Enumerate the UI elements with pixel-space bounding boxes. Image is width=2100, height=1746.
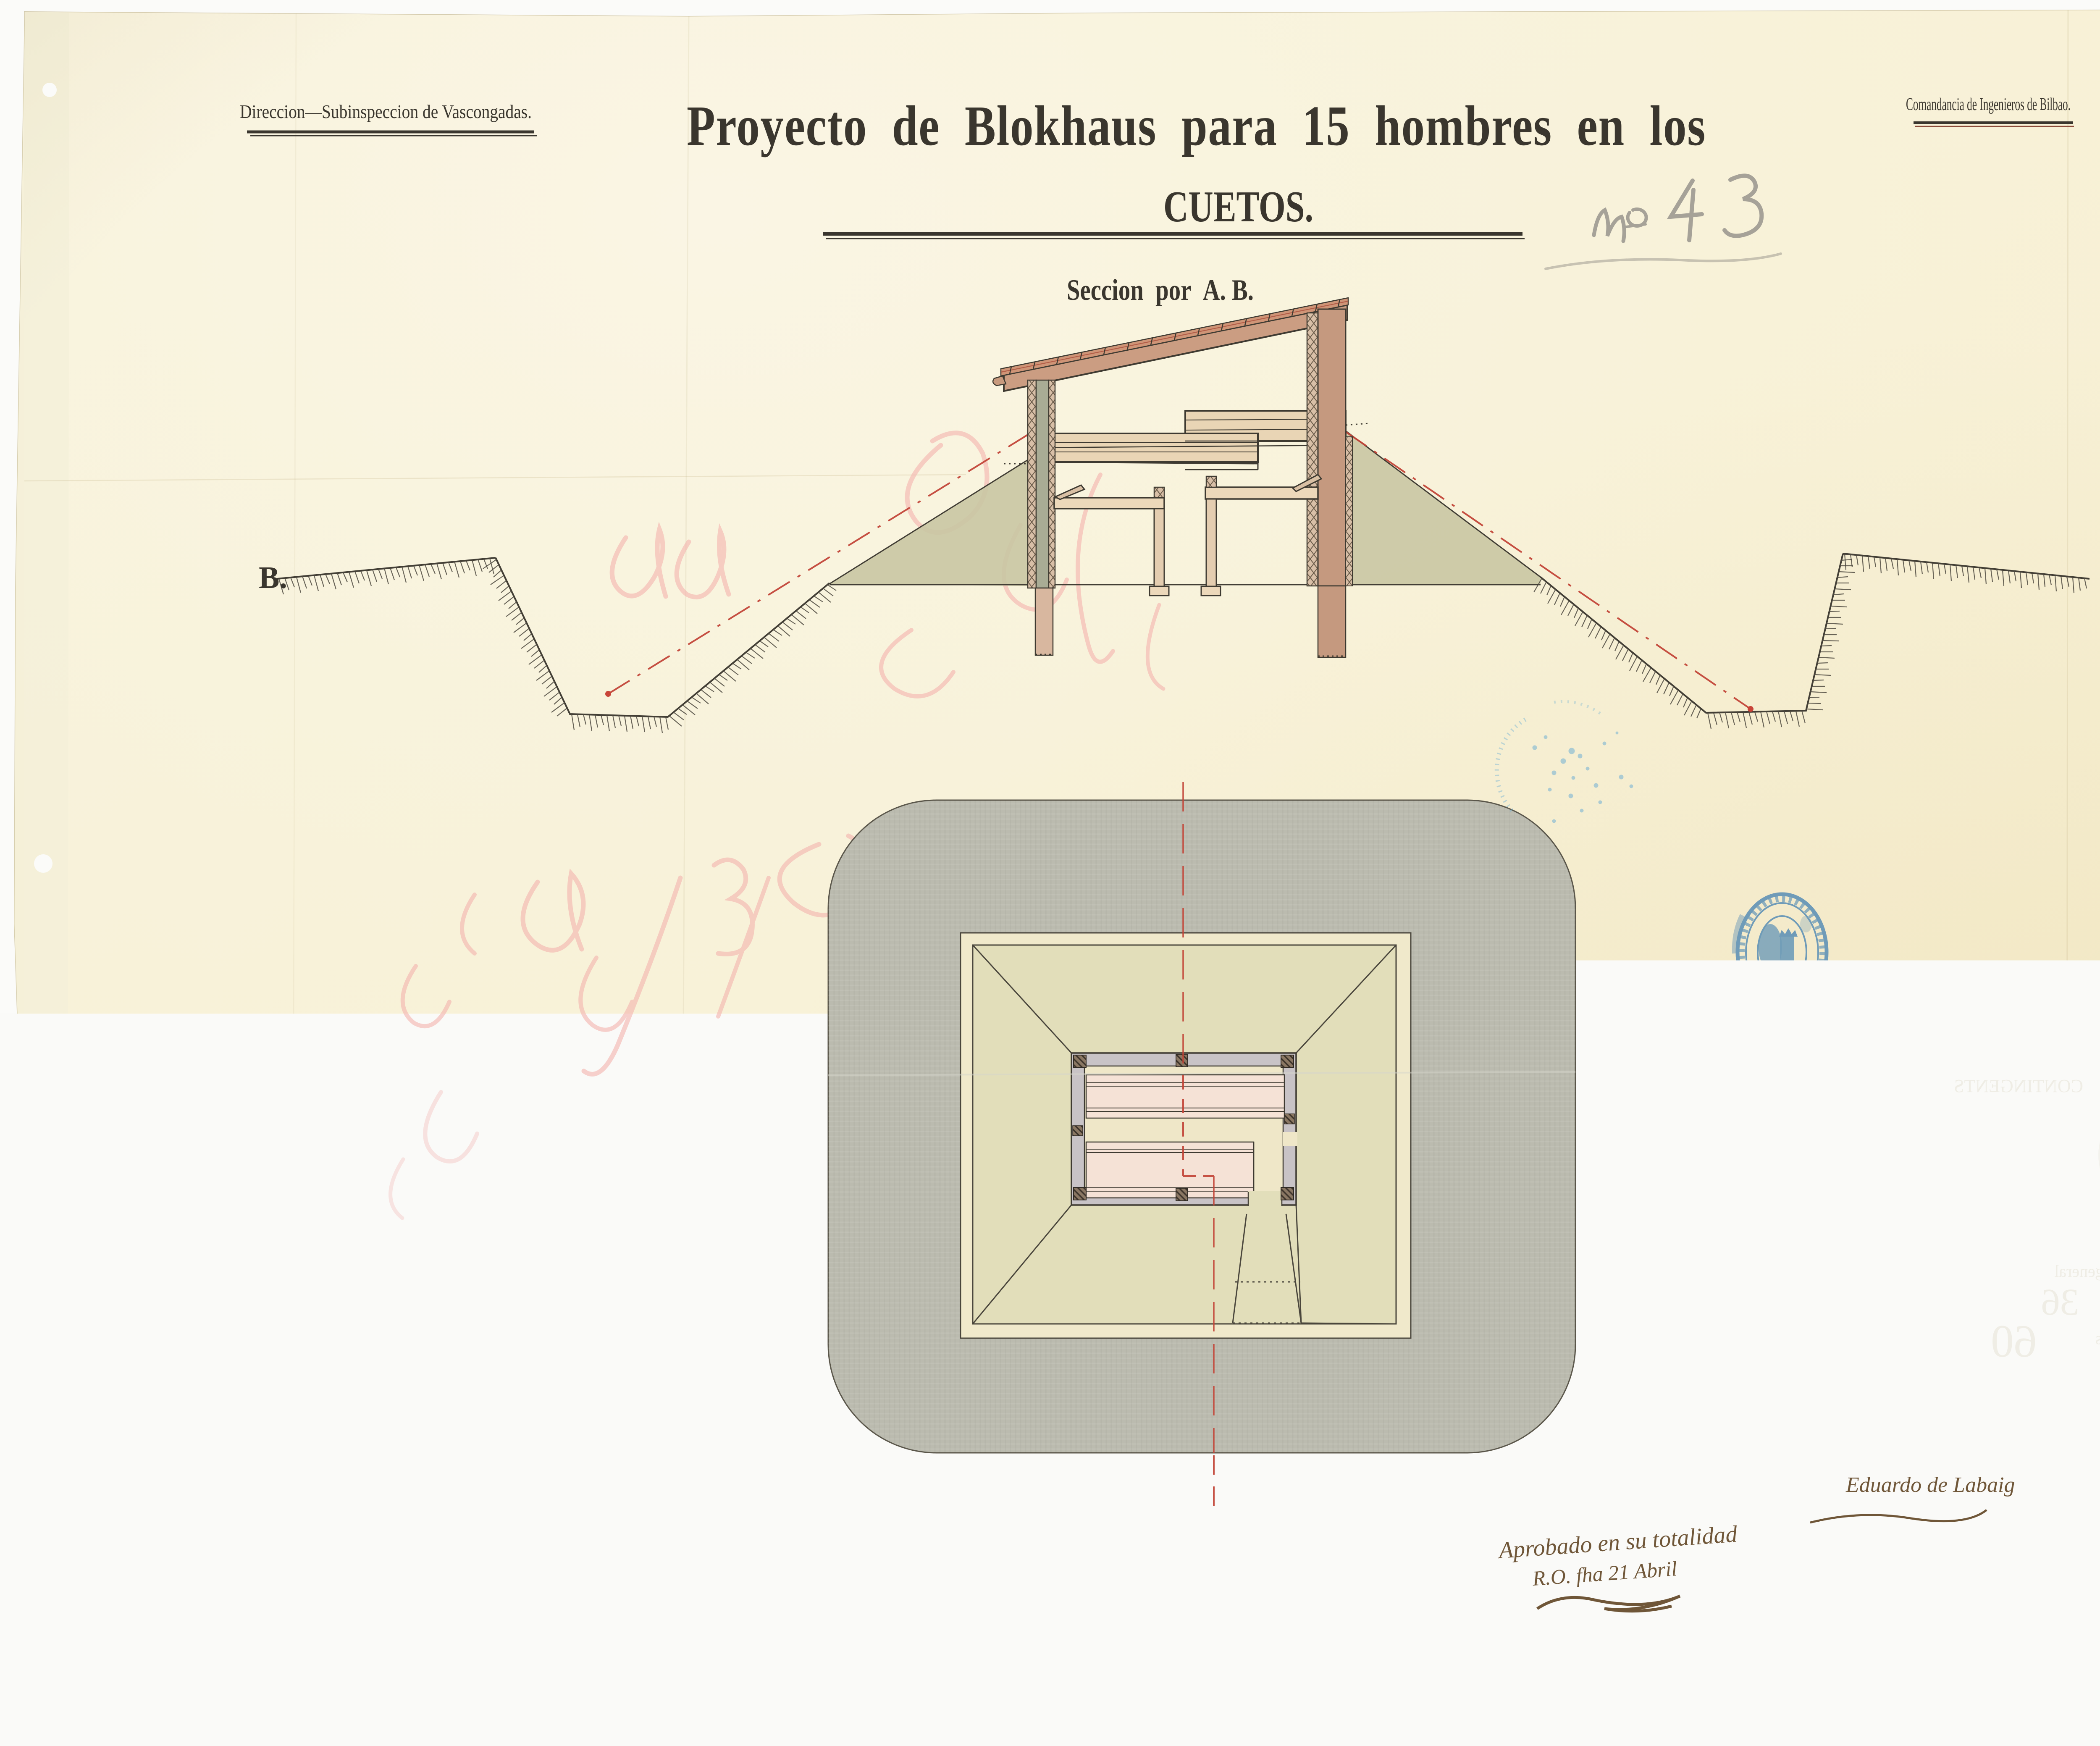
svg-text:5: 5	[1769, 1273, 1774, 1286]
svg-text:Direccion—Subinspeccion de Vas: Direccion—Subinspeccion de Vascongadas.	[240, 101, 532, 122]
svg-text:CONTINGENTS: CONTINGENTS	[1954, 1076, 2083, 1096]
svg-text:B.: B.	[259, 561, 287, 595]
svg-text:El Comandante de Ingenieros de: El Comandante de Ingenieros de la plaza.	[1831, 1447, 2091, 1467]
svg-text:60: 60	[1991, 1315, 2037, 1367]
svg-text:0: 0	[1787, 1273, 1793, 1286]
svg-text:3: 3	[1894, 1273, 1900, 1286]
svg-text:2: 2	[1858, 1273, 1864, 1286]
svg-text:4: 4	[2079, 1236, 2084, 1248]
svg-text:1: 1	[1822, 1273, 1828, 1286]
svg-text:Para la Seccion 1 por 50.: Para la Seccion 1 por 50.	[1871, 1219, 2053, 1238]
svg-text:A.: A.	[1169, 758, 1197, 790]
svg-text:1: 1	[1751, 1273, 1757, 1286]
svg-text:4: 4	[1929, 1273, 1935, 1286]
svg-text:36: 36	[2041, 1281, 2079, 1323]
svg-text:Numero general: Numero general	[2054, 1262, 2100, 1281]
svg-text:25: 25	[1798, 1238, 1809, 1251]
svg-text:Comandancia de Ingenieros de B: Comandancia de Ingenieros de Bilbao.	[1906, 95, 2071, 114]
svg-text:Escala: Escala	[1666, 1245, 1722, 1267]
svg-text:5: 5	[1965, 1273, 1971, 1286]
svg-text:50: 50	[1781, 1238, 1793, 1251]
svg-text:Para la planta 1 por 100.: Para la planta 1 por 100.	[1868, 1289, 2048, 1308]
svg-text:N. de hojas: N. de hojas	[2095, 1329, 2100, 1348]
svg-text:B.: B.	[1205, 1514, 1232, 1546]
svg-text:1: 1	[1751, 1236, 1757, 1248]
svg-text:Proyecto de Blokhaus para: Proyecto de Blokhaus para 15 hombres en …	[687, 95, 1706, 158]
svg-text:2: 2	[1948, 1236, 1953, 1248]
svg-text:75: 75	[1765, 1238, 1776, 1251]
svg-text:Seccion por A. B.: Seccion por A. B.	[1067, 274, 1254, 307]
svg-text:Eduardo de Labaig: Eduardo de Labaig	[1845, 1473, 2015, 1497]
svg-text:Bilbao 7 de Abril de 1875: Bilbao 7 de Abril de 1875.	[281, 1481, 491, 1503]
svg-text:0: 0	[1816, 1236, 1822, 1248]
svg-text:6: 6	[2001, 1273, 2007, 1286]
svg-text:1: 1	[1882, 1236, 1888, 1248]
svg-text:3: 3	[2013, 1236, 2019, 1248]
svg-text:CUETOS.: CUETOS.	[1163, 182, 1313, 231]
